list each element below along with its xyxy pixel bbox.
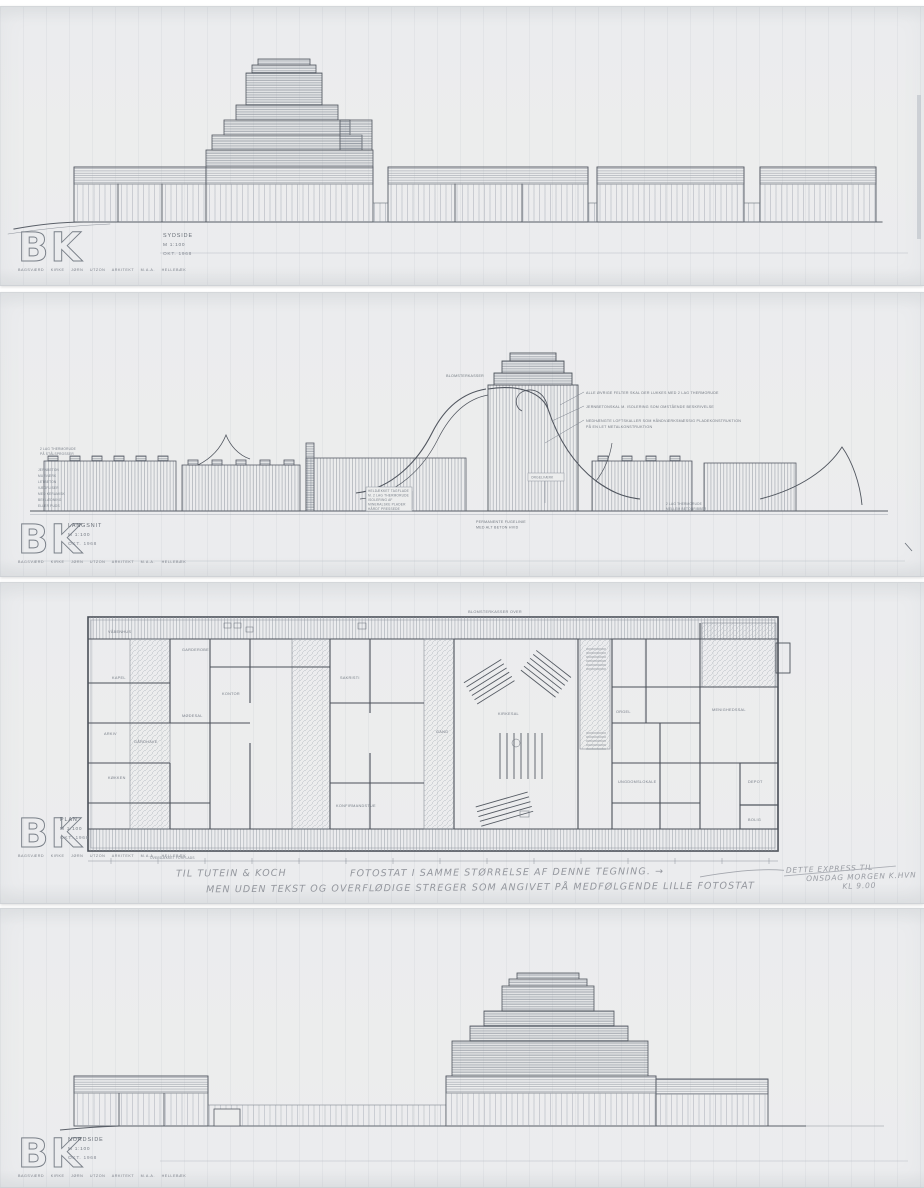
thermo-right-2: MELLEM BETONRIBBER <box>666 507 707 511</box>
room-label: GÅRDHAVE <box>134 739 158 744</box>
organ-label: ORGELVÆRK <box>528 473 564 481</box>
floor-plan-drawing <box>88 617 790 864</box>
title-block: BK LANGSNIT M 1:100 OKT. 1968 BAGSVÆRD K… <box>18 517 186 564</box>
credit-line: BAGSVÆRD KIRKE JØRN UTZON ARKITEKT M.A.A… <box>18 854 186 858</box>
room-label: KONTOR <box>222 692 240 696</box>
colonnade-band <box>88 617 778 639</box>
drawing-title: NORDSIDE <box>68 1137 104 1143</box>
note-mid: HÅRDT PRESSEDE <box>368 506 400 511</box>
building-module <box>446 1076 656 1126</box>
note-left-list: VÆGFLISER <box>38 486 59 490</box>
building-module <box>656 1079 768 1126</box>
note-left-list: ELLER PUDS <box>38 504 60 508</box>
room-label: SAKRISTI <box>340 676 360 680</box>
room-label: GARDEROBE <box>182 648 209 652</box>
note-left-list: JERNBETON <box>38 468 60 472</box>
bk-logo: BK <box>18 225 83 271</box>
drawing-title: SYDSIDE <box>163 233 193 239</box>
credit-line: BAGSVÆRD KIRKE JØRN UTZON ARKITEKT M.A.A… <box>18 1174 186 1178</box>
handwriting-right3: KL 9.00 <box>842 881 876 891</box>
note-left-list: BEKLÆDNING <box>38 498 62 502</box>
room-label: KAPEL <box>112 676 126 680</box>
handwriting-line3: MEN UDEN TEKST OG OVERFLØDIGE STREGER SO… <box>206 880 755 896</box>
ground-line <box>60 1126 806 1130</box>
fixtures <box>224 623 529 817</box>
sheet-south-elevation: BK SYDSIDE M 1:100 OKT. 1968 BAGSVÆRD KI… <box>0 6 924 286</box>
room-label: ORGEL <box>616 710 631 714</box>
handwriting-line2: FOTOSTAT I SAMME STØRRELSE AF DENNE TEGN… <box>350 866 664 879</box>
drawing-title: LANGSNIT <box>68 523 102 529</box>
note-right-2: JERNBETONSKAL M. ISOLERING SOM OMSTÅENDE… <box>586 404 714 409</box>
room-label: VÅBENHUS <box>108 629 131 634</box>
note-left-top-2: PÅ STÅLSPROSSER <box>40 451 74 456</box>
colonnade-band <box>88 829 778 851</box>
fuge-label-1: PERMANENTE FUGELINIE <box>476 520 526 524</box>
building-module <box>74 1076 208 1126</box>
building-module <box>206 167 373 222</box>
south-elevation-drawing <box>8 59 882 234</box>
note-right-1: ALLE ØVRIGE FELTER SKAL DER LUKKES MED 2… <box>586 391 719 395</box>
room-label: KIRKESAL <box>498 712 519 716</box>
handwriting-line1: TIL TUTEIN & KOCH <box>176 868 287 880</box>
date-label: OKT. 1968 <box>68 1155 97 1161</box>
courtyard <box>130 623 776 829</box>
building-module <box>388 167 588 222</box>
scanned-drawing-set: { "document": { "office_logo": "BK", "ti… <box>0 0 924 1186</box>
north-elevation-drawing <box>60 973 884 1130</box>
building-module <box>760 167 876 222</box>
credit-line: BAGSVÆRD KIRKE JØRN UTZON ARKITEKT M.A.A… <box>18 268 186 272</box>
stepped-tower <box>452 973 648 1076</box>
room-label: KONFIRMANDSTUE <box>336 804 376 808</box>
room-label: KØKKEN <box>108 776 126 780</box>
handwritten-note-right: DETTE EXPRESS TIL ONSDAG MORGEN K.HVN KL… <box>784 861 917 893</box>
note-mid: MINERALSKE PLADER <box>368 503 406 507</box>
note-mid: HELDÆKKET TAGFLADE <box>368 489 409 493</box>
stepped-tower <box>206 59 373 167</box>
drawing-title: PLAN <box>60 817 78 823</box>
title-block: BK SYDSIDE M 1:100 OKT. 1968 BAGSVÆRD KI… <box>18 225 193 272</box>
note-left-list: MED KERAMISK <box>38 492 66 496</box>
label-blomsterkasser: BLOMSTERKASSER <box>446 374 484 378</box>
room-label: GANG <box>436 730 448 734</box>
ground-line <box>14 222 882 229</box>
building-module <box>597 167 744 222</box>
note-left-list: LETBETON <box>38 480 57 484</box>
scale-label: M 1:100 <box>60 826 82 832</box>
room-label: DEPOT <box>748 780 763 784</box>
title-block: BK NORDSIDE M 1:100 OKT. 1968 BAGSVÆRD K… <box>18 1131 186 1178</box>
organ-label-text: ORGELVÆRK <box>531 476 554 480</box>
note-right-3: NEDHÆNGTE LOFTSKALLER SOM HÅNDVÆRKSMÆSSI… <box>586 418 741 423</box>
handwriting-connector-line <box>700 870 784 877</box>
building-module <box>74 167 206 222</box>
date-label: OKT. 1968 <box>60 835 89 841</box>
sheet-north-elevation: BK NORDSIDE M 1:100 OKT. 1968 BAGSVÆRD K… <box>0 908 924 1188</box>
credit-line: BAGSVÆRD KIRKE JØRN UTZON ARKITEKT M.A.A… <box>18 560 186 564</box>
note-mid: ISOLERING AF <box>368 498 393 502</box>
note-mid: M. 2 LAG THERMORUDE <box>368 494 409 498</box>
room-label: MENIGHEDSSAL <box>712 708 746 712</box>
scale-label: M 1:100 <box>68 1146 90 1152</box>
thermo-right-1: 2 LAG THERMORUDE <box>666 502 702 506</box>
date-label: OKT. 1968 <box>68 541 97 547</box>
room-label: MØDESAL <box>182 714 203 718</box>
note-right-4: PÅ EN LET METALKONSTRUKTION <box>586 424 652 429</box>
note-left-top-1: 2 LAG THERMORUDE <box>40 447 76 451</box>
fuge-label-2: MED ALT BETON HVID <box>476 526 519 530</box>
note-left-list: MURVÆRK <box>38 474 57 478</box>
handwritten-note: TIL TUTEIN & KOCH FOTOSTAT I SAMME STØRR… <box>176 864 784 895</box>
room-label: ARKIV <box>104 732 117 736</box>
tower-section <box>488 353 578 511</box>
sheet-long-section: BLOMSTERKASSER ALLE ØVRIGE FELTER SKAL D… <box>0 292 924 577</box>
scale-label: M 1:100 <box>163 242 185 248</box>
sheet-floor-plan: VÅBENHUS GARDEROBE KAPEL KONTOR MØDESAL … <box>0 582 924 904</box>
scale-label: M 1:100 <box>68 532 90 538</box>
room-label: UNGDOMSLOKALE <box>618 780 657 784</box>
pew-group <box>464 650 571 826</box>
room-label: BOLIG <box>748 818 761 822</box>
scan-artifacts <box>30 543 912 561</box>
plan-top-label: BLOMSTERKASSER OVER <box>468 610 522 614</box>
date-label: OKT. 1968 <box>163 251 192 257</box>
connecting-wall <box>208 1105 446 1126</box>
